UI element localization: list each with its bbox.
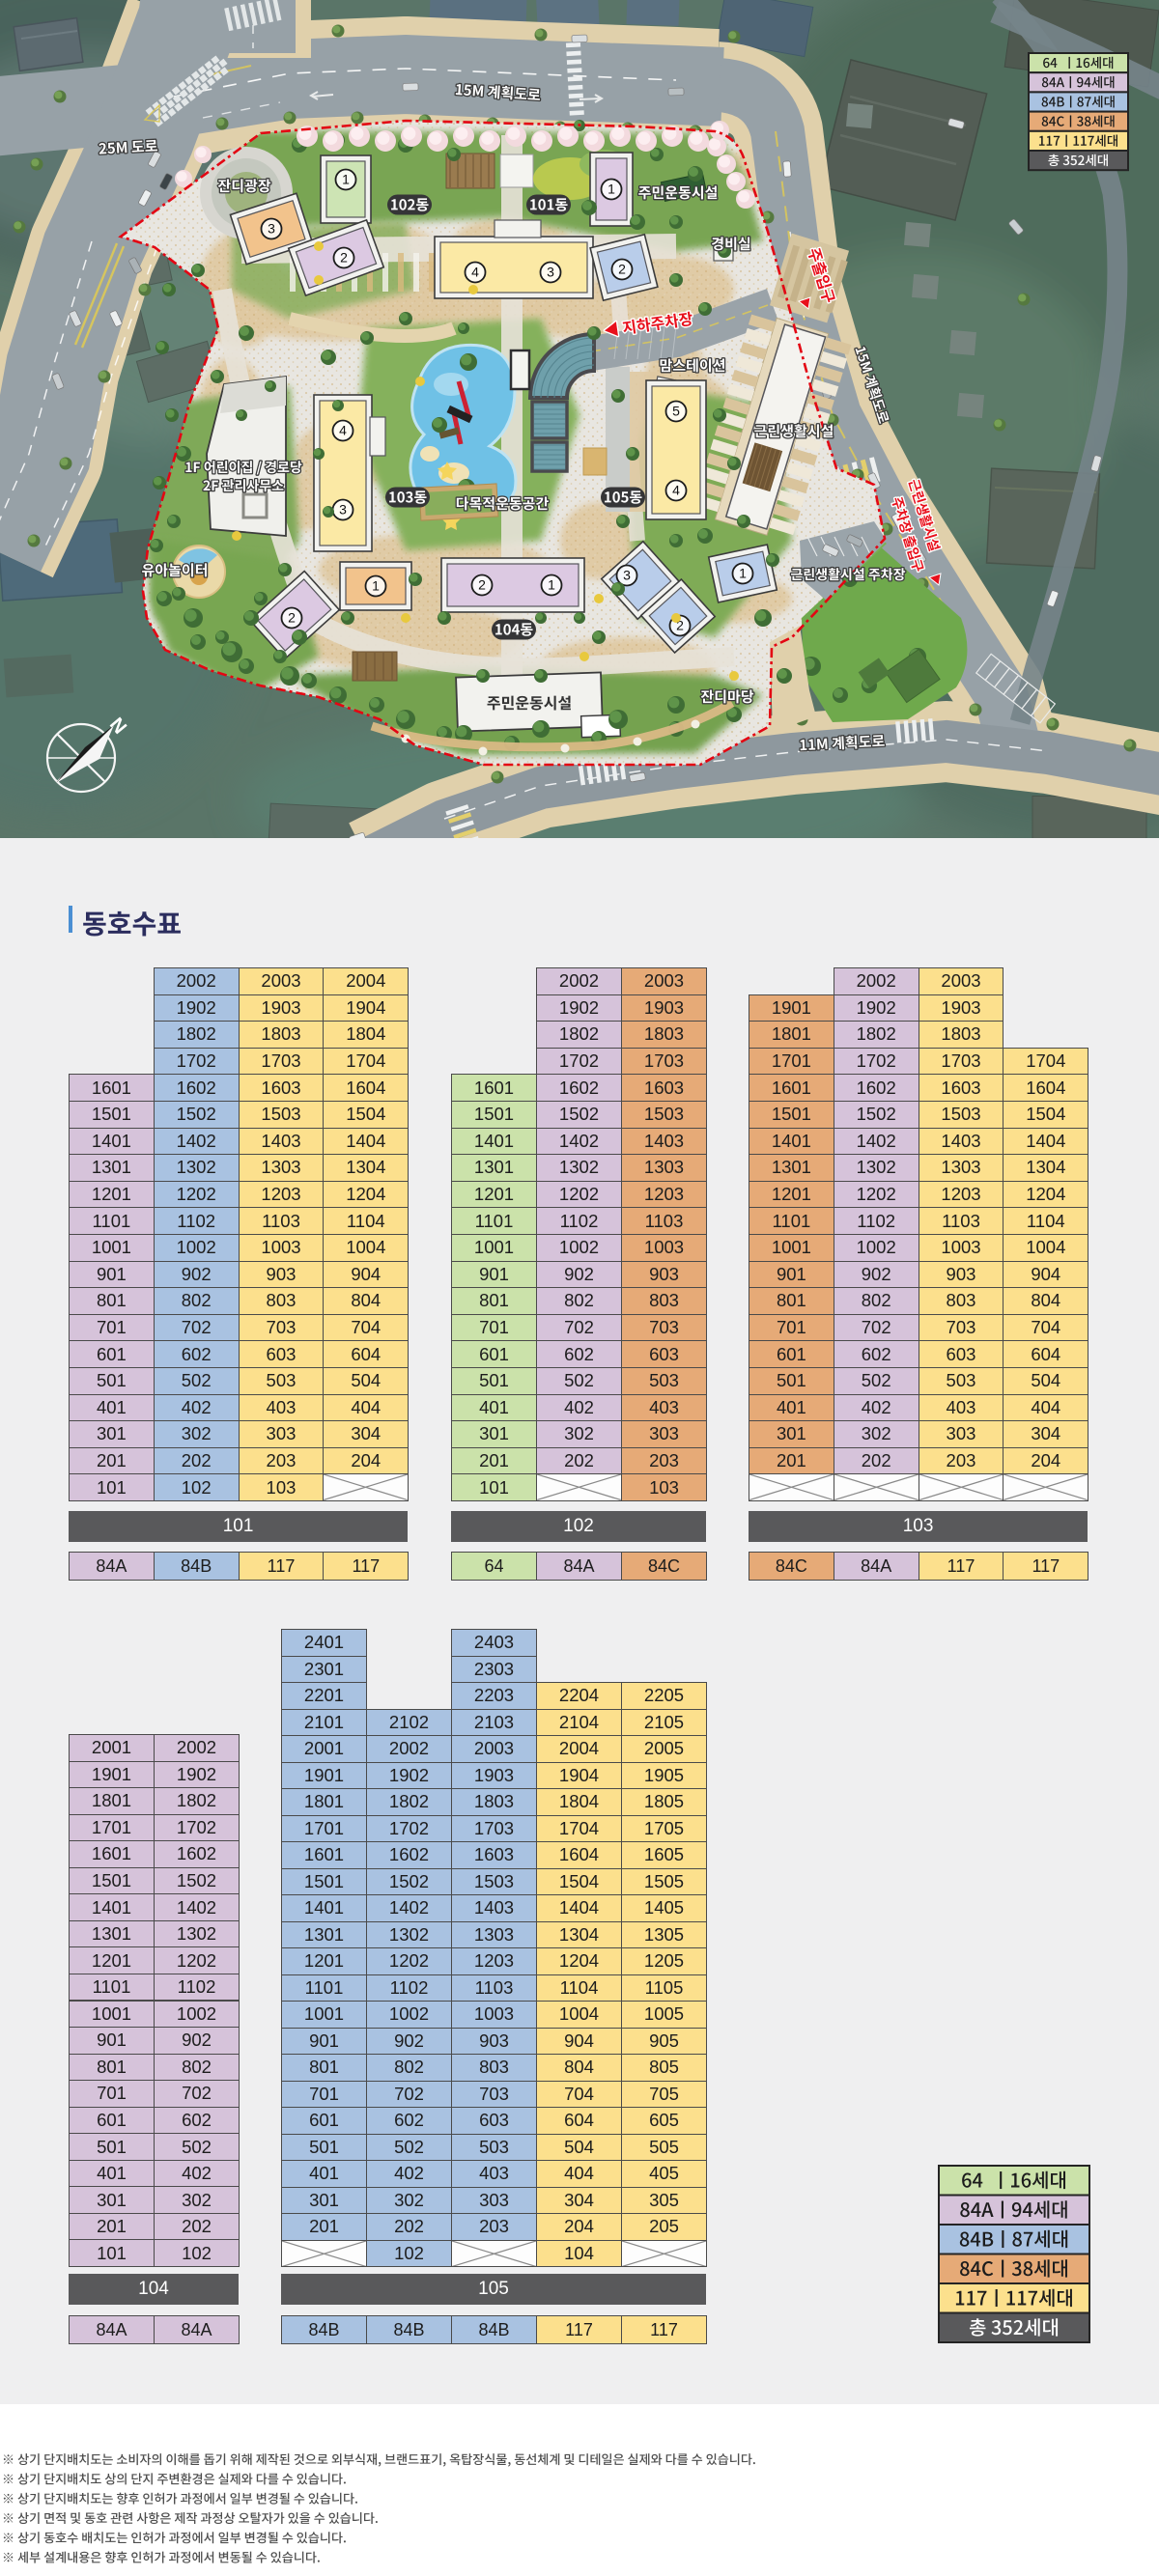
svg-text:3: 3 [547, 265, 554, 280]
svg-text:3: 3 [339, 502, 347, 518]
svg-text:4: 4 [339, 423, 347, 438]
svg-text:4: 4 [471, 265, 479, 280]
svg-text:3: 3 [268, 221, 275, 237]
svg-text:1: 1 [739, 566, 747, 581]
svg-text:2: 2 [618, 262, 626, 277]
svg-text:2: 2 [340, 250, 348, 266]
svg-text:1: 1 [548, 577, 555, 593]
svg-text:4: 4 [672, 483, 680, 498]
svg-text:3: 3 [623, 568, 631, 583]
svg-text:1: 1 [342, 172, 350, 187]
svg-text:5: 5 [672, 404, 680, 419]
svg-text:1: 1 [608, 182, 615, 197]
svg-text:2: 2 [288, 610, 296, 626]
svg-text:2: 2 [478, 577, 486, 593]
svg-text:1: 1 [372, 578, 380, 594]
